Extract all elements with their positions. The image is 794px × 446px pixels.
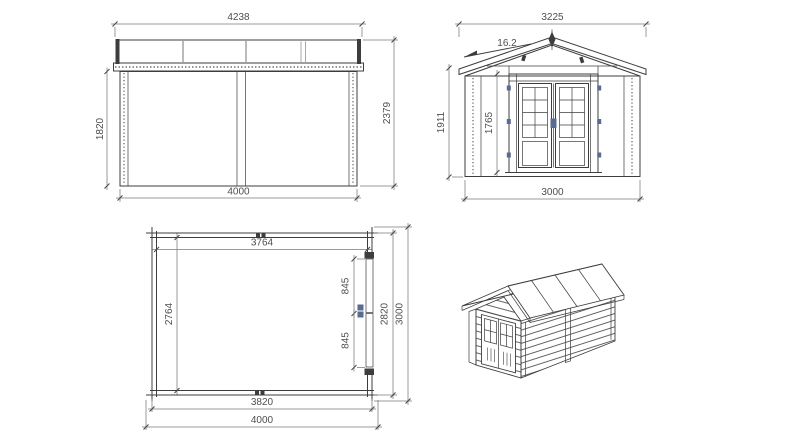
dim-label-side-total-height: 2379 bbox=[382, 101, 393, 124]
dim-label-side-roof-width: 4238 bbox=[227, 12, 250, 23]
dim-label-front-roof-width: 3225 bbox=[541, 12, 564, 23]
dim-plan-inner-width: 3764 bbox=[153, 238, 372, 253]
dim-plan-door-leaf-lower: 845 bbox=[341, 310, 366, 372]
ridge-beam-mark-bottom2 bbox=[261, 391, 265, 396]
p3d-doors bbox=[482, 315, 516, 373]
dim-label-plan-inner-depth: 2764 bbox=[164, 302, 175, 325]
dim-side-total-height: 2379 bbox=[360, 36, 398, 190]
dim-label-plan-inner-width: 3764 bbox=[251, 238, 274, 249]
side-roof bbox=[114, 39, 364, 71]
ridge-beam-mark-bottom bbox=[255, 391, 259, 396]
dim-label-plan-wall-width: 3820 bbox=[251, 397, 274, 408]
door-post-bottom bbox=[365, 369, 375, 376]
dim-front-base-width: 3000 bbox=[461, 180, 644, 202]
door-window-left bbox=[523, 88, 548, 138]
dim-side-wall-height: 1820 bbox=[95, 68, 110, 191]
floor-plan-view: 3764 2764 845 845 2820 bbox=[142, 223, 412, 430]
front-elevation-view: 16.2 bbox=[436, 12, 650, 202]
dim-label-plan-overall-depth: 3000 bbox=[395, 302, 406, 325]
dim-label-plan-door-leaf-lower: 845 bbox=[341, 332, 352, 349]
roof-bracket-right bbox=[579, 57, 584, 64]
dim-plan-inner-depth: 2764 bbox=[164, 234, 180, 395]
dim-label-front-base-width: 3000 bbox=[541, 187, 564, 198]
p3d-left-wall-sliver bbox=[469, 309, 476, 365]
dim-label-front-eave-height: 1911 bbox=[436, 111, 447, 133]
drawing-canvas: 4238 1820 2379 4000 bbox=[0, 0, 794, 446]
dim-side-base-width: 4000 bbox=[116, 187, 361, 203]
side-log-wall bbox=[120, 72, 357, 187]
door-handle bbox=[551, 119, 557, 129]
dim-label-plan-door-leaf-upper: 845 bbox=[341, 277, 352, 294]
dim-label-plan-overall-width: 4000 bbox=[251, 415, 274, 426]
roof-finial bbox=[549, 30, 556, 51]
dim-front-eave-height: 1911 bbox=[436, 64, 463, 181]
side-elevation-view: 4238 1820 2379 4000 bbox=[95, 12, 398, 202]
front-gable-wall bbox=[465, 45, 640, 76]
dim-side-roof-width: 4238 bbox=[111, 12, 366, 37]
dim-label-roof-pitch: 16.2 bbox=[497, 38, 517, 49]
dim-label-front-door-height: 1765 bbox=[484, 111, 495, 134]
dim-label-plan-wall-depth: 2820 bbox=[380, 302, 391, 325]
door-post-top bbox=[365, 252, 375, 259]
door-slat-panel-right bbox=[560, 142, 585, 166]
dim-plan-wall-width: 3820 bbox=[148, 397, 376, 412]
technical-drawing: 4238 1820 2379 4000 bbox=[0, 0, 794, 446]
door-slat-panel-left bbox=[523, 142, 548, 166]
dim-label-side-base-width: 4000 bbox=[227, 187, 250, 198]
plan-door-opening bbox=[358, 252, 376, 375]
plan-door-handle-a bbox=[358, 305, 364, 311]
door-window-right bbox=[560, 88, 585, 138]
plan-door-handle-b bbox=[358, 312, 364, 318]
front-double-door bbox=[505, 74, 602, 173]
dim-front-door-height: 1765 bbox=[484, 70, 500, 176]
dim-label-side-wall-height: 1820 bbox=[95, 117, 106, 140]
plan-walls bbox=[146, 227, 378, 401]
perspective-view bbox=[462, 264, 624, 378]
